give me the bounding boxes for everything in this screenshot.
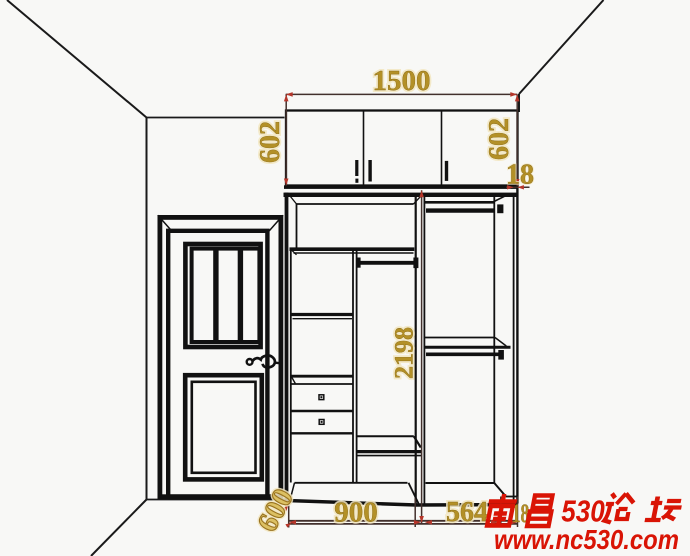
svg-text:18: 18 xyxy=(506,160,534,191)
svg-text:564: 564 xyxy=(446,497,488,528)
svg-text:900: 900 xyxy=(334,497,378,529)
svg-text:2198: 2198 xyxy=(390,327,419,379)
svg-text:602: 602 xyxy=(255,121,286,163)
svg-text:www.nc530.com: www.nc530.com xyxy=(494,524,679,555)
svg-text:1500: 1500 xyxy=(373,65,431,97)
svg-text:602: 602 xyxy=(484,118,515,160)
